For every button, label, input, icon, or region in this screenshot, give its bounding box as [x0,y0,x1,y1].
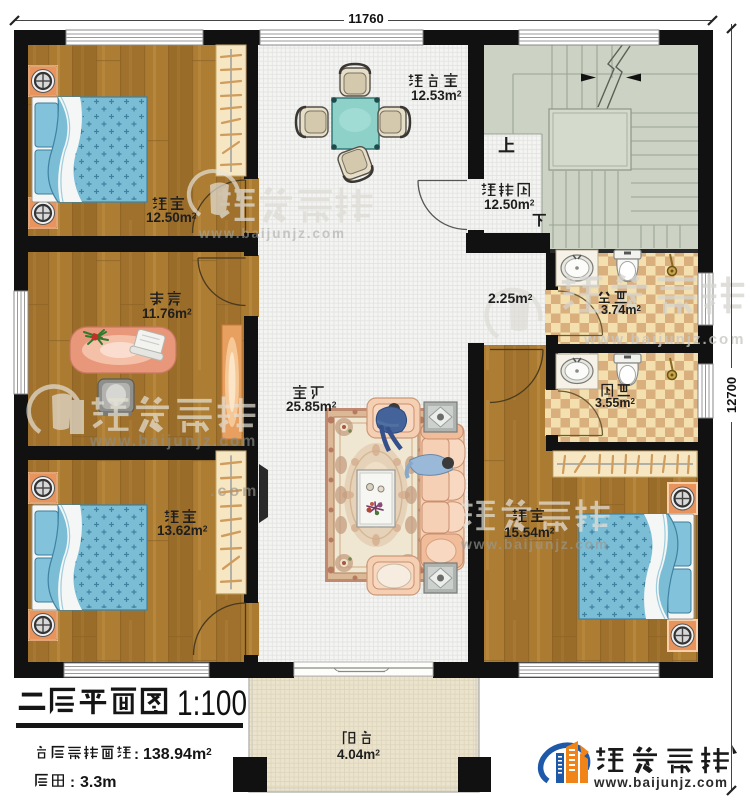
svg-text:2.25m2: 2.25m2 [488,290,533,306]
svg-text:11.76m2: 11.76m2 [142,306,192,321]
svg-text:www.baijunjz.com: www.baijunjz.com [198,226,346,241]
svg-text::: : [134,746,139,763]
svg-text:3.55m2: 3.55m2 [595,396,635,410]
svg-text:13.62m2: 13.62m2 [157,523,208,538]
svg-text:138.94m2: 138.94m2 [143,746,212,763]
svg-text:11760: 11760 [348,11,383,26]
svg-text:15.54m2: 15.54m2 [504,525,555,540]
svg-text:12.50m2: 12.50m2 [146,210,197,225]
svg-text:12.50m2: 12.50m2 [484,197,535,212]
svg-text:25.85m2: 25.85m2 [286,399,337,414]
svg-text:1:100: 1:100 [177,683,247,723]
svg-text:4.04m2: 4.04m2 [337,747,380,762]
svg-text:www.baijunjz.com: www.baijunjz.com [89,433,257,450]
svg-text:12.53m2: 12.53m2 [411,88,462,103]
svg-text:www.baijunjz.com: www.baijunjz.com [593,775,728,790]
svg-text:www.baijunjz.com: www.baijunjz.com [583,331,745,348]
svg-text:3.3m: 3.3m [80,774,116,791]
svg-text:.com: .com [210,483,259,500]
svg-text:3.74m2: 3.74m2 [601,303,641,317]
svg-text::: : [70,774,75,791]
svg-text:12700: 12700 [724,377,739,413]
